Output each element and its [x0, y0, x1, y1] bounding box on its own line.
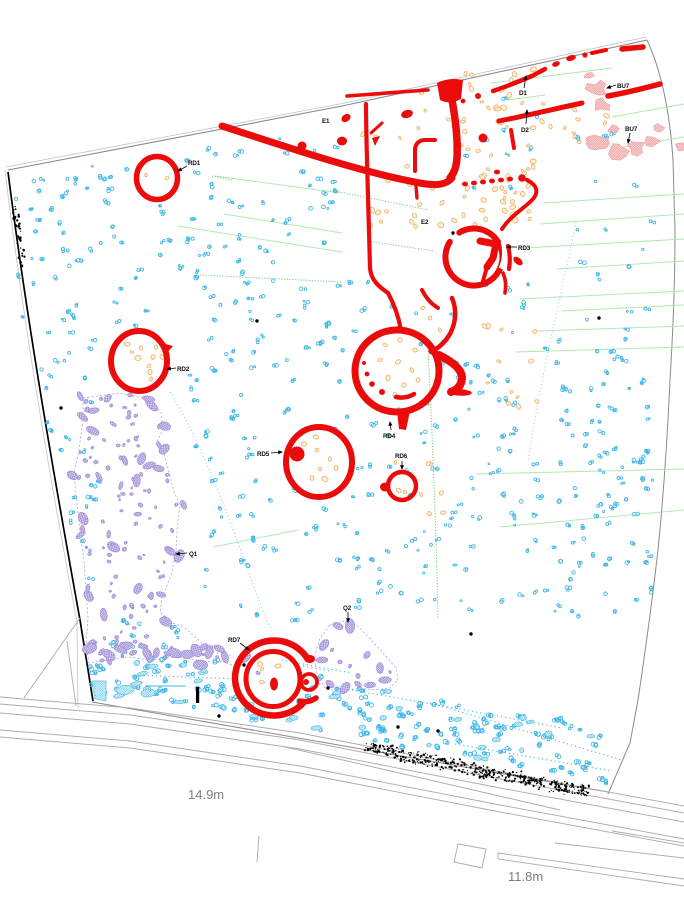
svg-text:E1: E1 [322, 118, 330, 125]
svg-text:RD7: RD7 [228, 637, 241, 644]
svg-text:RD4: RD4 [383, 433, 396, 440]
svg-text:RD6: RD6 [395, 453, 408, 460]
svg-text:BU7: BU7 [617, 83, 630, 90]
svg-text:RD1: RD1 [188, 160, 201, 167]
svg-text:14.9m: 14.9m [188, 787, 224, 802]
svg-text:Q1: Q1 [189, 551, 198, 558]
svg-text:RD3: RD3 [518, 245, 531, 252]
svg-text:11.8m: 11.8m [508, 869, 543, 884]
svg-text:E2: E2 [421, 219, 429, 226]
svg-text:Q2: Q2 [343, 605, 352, 612]
svg-text:RD5: RD5 [257, 451, 270, 458]
svg-text:D2: D2 [521, 127, 529, 134]
svg-text:D1: D1 [519, 90, 527, 97]
svg-text:RD2: RD2 [177, 366, 190, 373]
svg-text:BU7: BU7 [625, 126, 638, 133]
